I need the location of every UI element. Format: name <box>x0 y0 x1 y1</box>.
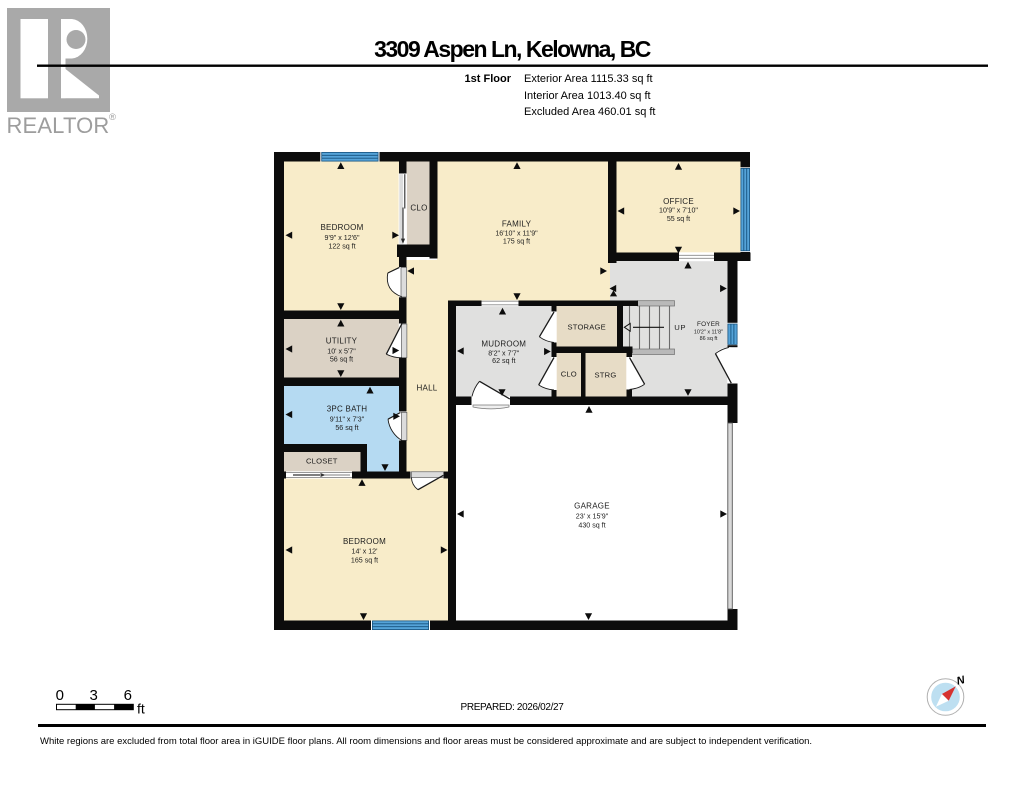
svg-text:REALTOR: REALTOR <box>7 113 110 138</box>
svg-text:175 sq ft: 175 sq ft <box>503 237 530 245</box>
svg-text:6: 6 <box>124 687 132 704</box>
svg-text:ft: ft <box>137 701 145 717</box>
svg-text:White regions are excluded fro: White regions are excluded from total fl… <box>40 736 812 747</box>
svg-text:9'11" x 7'3": 9'11" x 7'3" <box>330 415 365 423</box>
svg-text:430 sq ft: 430 sq ft <box>578 521 605 529</box>
svg-text:BEDROOM: BEDROOM <box>343 537 386 546</box>
svg-text:56 sq ft: 56 sq ft <box>330 355 353 363</box>
svg-text:122 sq ft: 122 sq ft <box>328 242 355 250</box>
svg-text:86 sq ft: 86 sq ft <box>700 336 718 342</box>
svg-text:FOYER: FOYER <box>697 321 720 328</box>
svg-text:Exterior Area 1115.33 sq ft: Exterior Area 1115.33 sq ft <box>524 73 653 85</box>
svg-text:STORAGE: STORAGE <box>567 322 605 331</box>
svg-text:1st Floor: 1st Floor <box>465 73 512 85</box>
svg-text:3PC BATH: 3PC BATH <box>327 404 368 413</box>
svg-text:23' x 15'9": 23' x 15'9" <box>576 512 609 520</box>
svg-text:Interior Area 1013.40 sq ft: Interior Area 1013.40 sq ft <box>524 90 651 102</box>
svg-text:3309 Aspen Ln, Kelowna, BC: 3309 Aspen Ln, Kelowna, BC <box>374 36 651 62</box>
svg-text:GARAGE: GARAGE <box>574 501 610 510</box>
svg-text:56 sq ft: 56 sq ft <box>335 424 358 432</box>
svg-text:0: 0 <box>56 687 64 704</box>
svg-text:10'9" x 7'10": 10'9" x 7'10" <box>659 206 698 214</box>
svg-text:CLO: CLO <box>561 369 577 378</box>
svg-text:165 sq ft: 165 sq ft <box>351 556 378 564</box>
svg-text:62 sq ft: 62 sq ft <box>492 357 515 365</box>
svg-text:FAMILY: FAMILY <box>502 219 532 228</box>
svg-text:14' x 12': 14' x 12' <box>352 547 378 555</box>
svg-text:3: 3 <box>90 687 98 704</box>
svg-text:OFFICE: OFFICE <box>663 197 694 206</box>
svg-text:10'2" x 11'8": 10'2" x 11'8" <box>694 329 723 335</box>
svg-text:16'10" x 11'9": 16'10" x 11'9" <box>495 229 538 237</box>
svg-text:PREPARED: 2026/02/27: PREPARED: 2026/02/27 <box>461 702 565 713</box>
svg-text:®: ® <box>109 112 116 123</box>
svg-text:CLOSET: CLOSET <box>306 456 338 465</box>
svg-text:55 sq ft: 55 sq ft <box>667 215 690 223</box>
svg-text:CLO: CLO <box>410 203 427 212</box>
svg-text:HALL: HALL <box>416 383 437 392</box>
svg-text:MUDROOM: MUDROOM <box>481 339 526 348</box>
svg-text:Excluded Area 460.01 sq ft: Excluded Area 460.01 sq ft <box>524 106 655 118</box>
svg-text:STRG: STRG <box>595 370 617 379</box>
svg-text:UP: UP <box>674 323 686 332</box>
svg-text:10' x 5'7": 10' x 5'7" <box>327 347 356 355</box>
svg-text:BEDROOM: BEDROOM <box>320 223 363 232</box>
svg-text:UTILITY: UTILITY <box>326 336 358 345</box>
svg-text:9'9" x 12'6": 9'9" x 12'6" <box>325 234 360 242</box>
